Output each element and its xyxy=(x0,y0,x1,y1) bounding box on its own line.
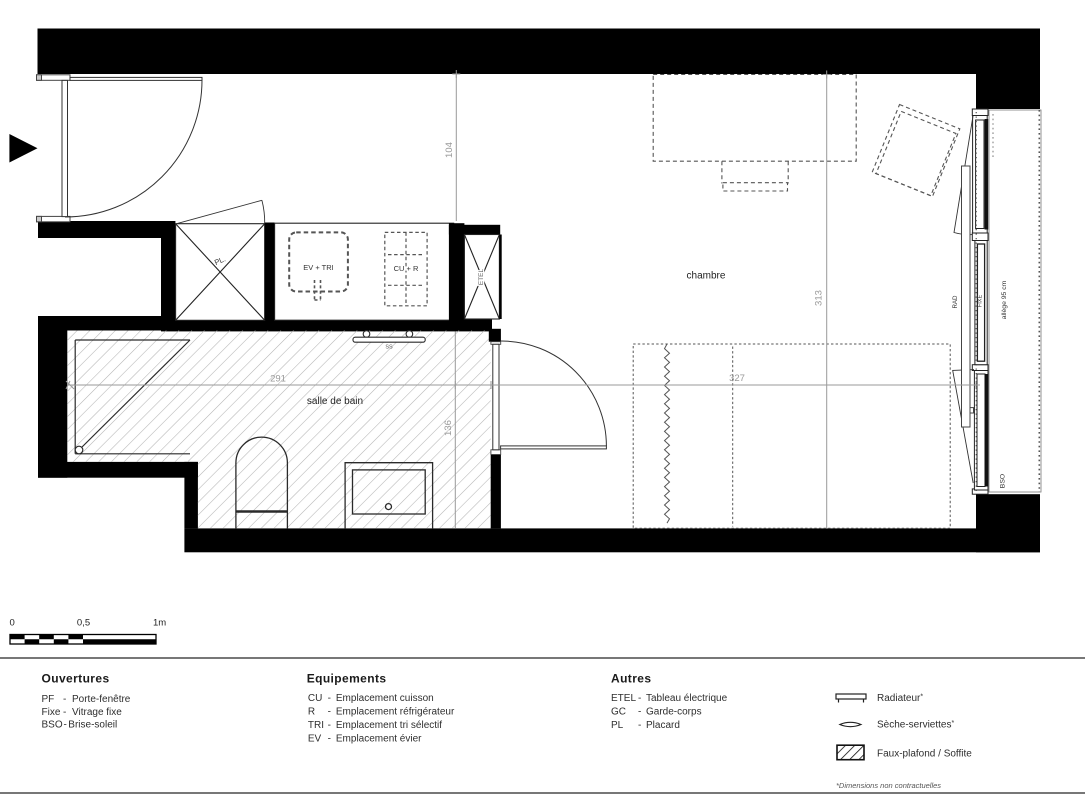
svg-text:BSO: BSO xyxy=(1000,474,1007,488)
svg-text:Equipements: Equipements xyxy=(307,672,387,686)
svg-text:Fixe: Fixe xyxy=(42,707,61,718)
svg-text:chambre: chambre xyxy=(687,271,726,282)
svg-text:Placard: Placard xyxy=(646,720,680,731)
svg-text:EV: EV xyxy=(308,733,322,744)
svg-text:Garde-corps: Garde-corps xyxy=(646,707,702,718)
svg-text:PF: PF xyxy=(42,694,55,705)
svg-text:Sèche-serviettes*: Sèche-serviettes* xyxy=(877,720,954,731)
svg-text:R: R xyxy=(308,707,315,718)
svg-text:Porte-fenêtre: Porte-fenêtre xyxy=(72,694,131,705)
svg-text:-: - xyxy=(63,694,66,705)
svg-text:Tableau électrique: Tableau électrique xyxy=(646,693,728,704)
svg-text:-: - xyxy=(64,720,67,731)
svg-text:*Dimensions non contractuelles: *Dimensions non contractuelles xyxy=(836,781,941,790)
svg-text:CU + R: CU + R xyxy=(394,264,419,273)
svg-text:Ouvertures: Ouvertures xyxy=(42,672,110,686)
svg-text:Emplacement tri sélectif: Emplacement tri sélectif xyxy=(336,720,442,731)
svg-text:0: 0 xyxy=(10,618,15,629)
svg-text:104: 104 xyxy=(444,142,455,158)
svg-text:-: - xyxy=(328,693,331,704)
svg-text:ETEL: ETEL xyxy=(478,268,485,285)
svg-text:327: 327 xyxy=(729,373,745,384)
svg-text:FIXE: FIXE xyxy=(978,295,984,308)
svg-text:Faux-plafond / Soffite: Faux-plafond / Soffite xyxy=(877,749,972,760)
svg-text:-: - xyxy=(638,693,641,704)
svg-text:136: 136 xyxy=(443,420,454,436)
svg-text:-: - xyxy=(328,720,331,731)
svg-text:1m: 1m xyxy=(153,618,166,629)
svg-text:allège 95 cm: allège 95 cm xyxy=(1001,280,1008,319)
svg-text:salle de bain: salle de bain xyxy=(307,396,363,407)
svg-text:-: - xyxy=(63,707,66,718)
svg-text:Autres: Autres xyxy=(611,672,651,686)
svg-text:EV + TRI: EV + TRI xyxy=(303,263,334,272)
svg-text:Brise-soleil: Brise-soleil xyxy=(68,720,117,731)
svg-text:291: 291 xyxy=(270,374,286,385)
svg-text:Emplacement cuisson: Emplacement cuisson xyxy=(336,693,434,704)
svg-text:RAD: RAD xyxy=(952,295,959,309)
svg-text:ETEL: ETEL xyxy=(611,693,636,704)
svg-text:Emplacement évier: Emplacement évier xyxy=(336,733,422,744)
svg-text:Emplacement réfrigérateur: Emplacement réfrigérateur xyxy=(336,707,455,718)
svg-text:-: - xyxy=(638,720,641,731)
svg-text:PL: PL xyxy=(611,720,624,731)
svg-text:CU: CU xyxy=(308,693,322,704)
svg-text:BSO: BSO xyxy=(42,720,63,731)
svg-text:SS: SS xyxy=(385,345,393,351)
svg-text:GC: GC xyxy=(611,707,626,718)
svg-text:TRI: TRI xyxy=(308,720,324,731)
svg-text:313: 313 xyxy=(814,290,825,306)
svg-text:-: - xyxy=(328,707,331,718)
svg-text:0,5: 0,5 xyxy=(77,618,90,629)
svg-text:-: - xyxy=(638,707,641,718)
svg-text:Radiateur*: Radiateur* xyxy=(877,693,923,704)
svg-text:-: - xyxy=(328,733,331,744)
svg-text:Vitrage fixe: Vitrage fixe xyxy=(72,707,122,718)
